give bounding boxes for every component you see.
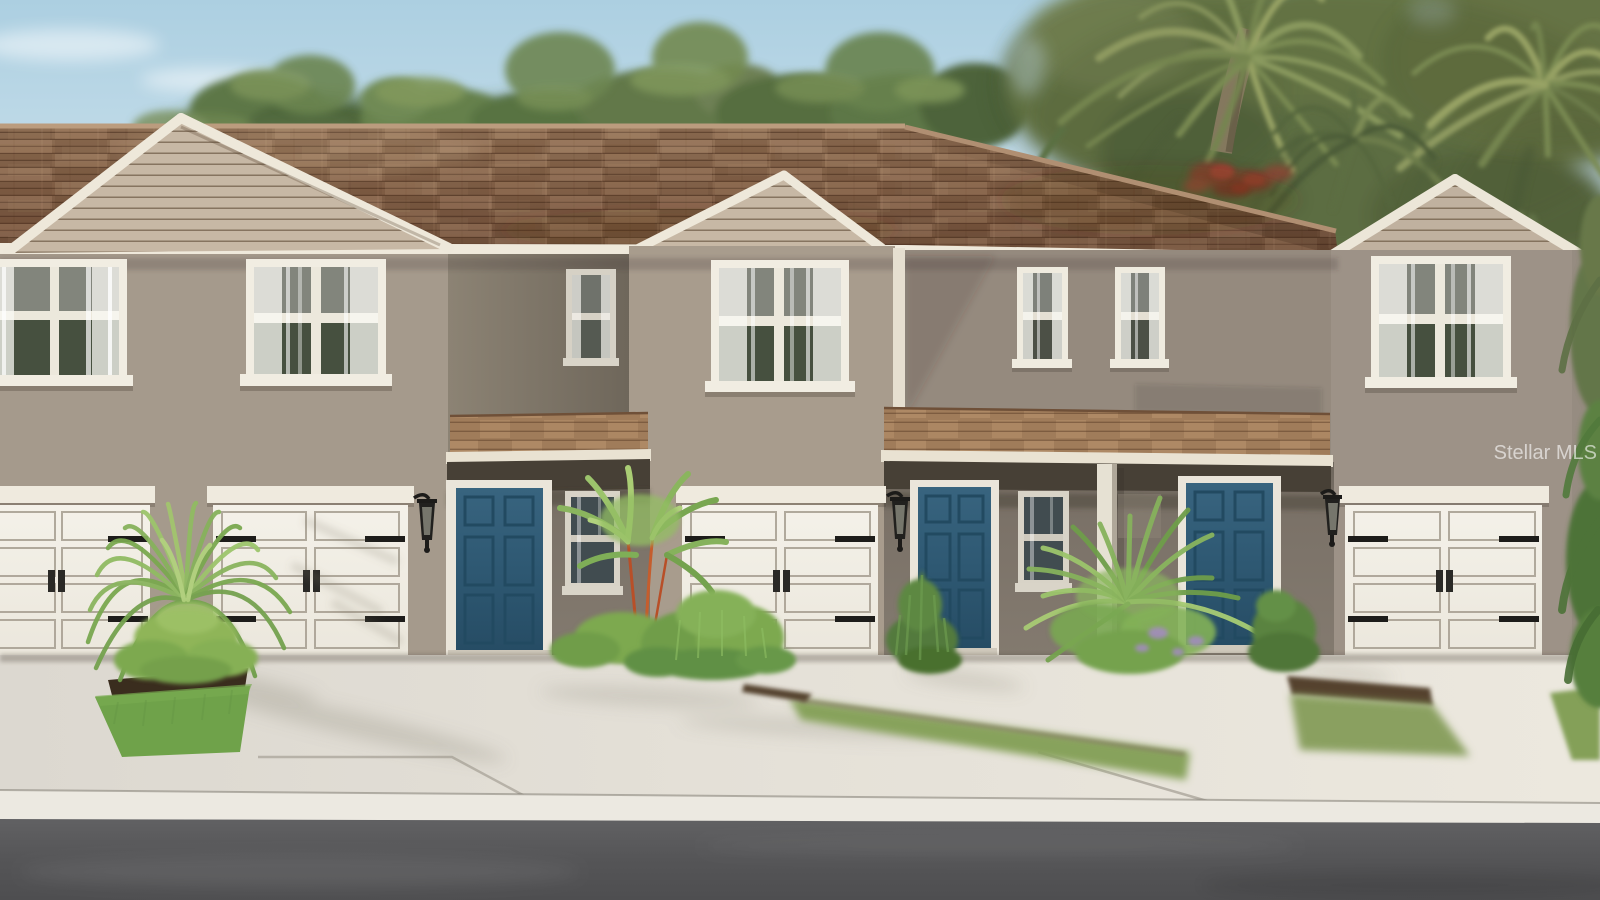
svg-text:Stellar MLS: Stellar MLS xyxy=(1494,442,1597,464)
